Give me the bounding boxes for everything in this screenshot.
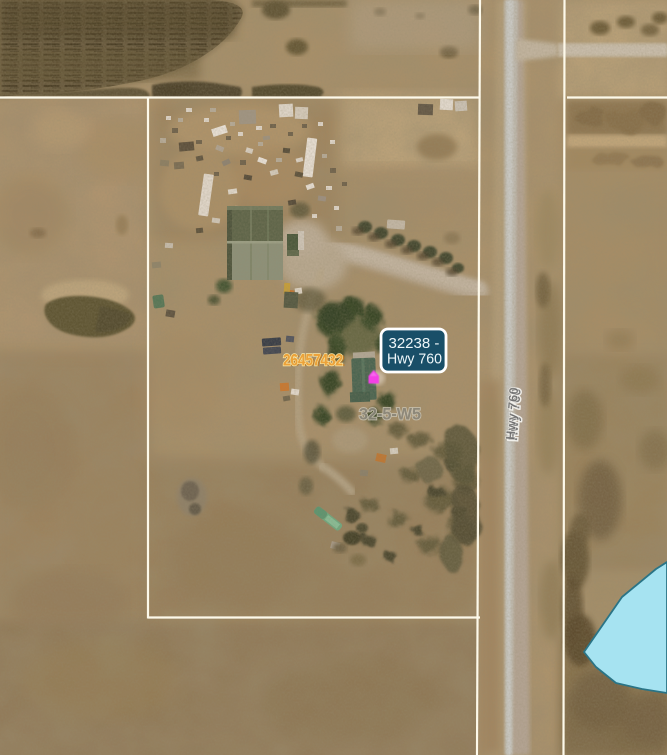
svg-text:32-5-W5: 32-5-W5 — [359, 405, 421, 424]
svg-text:26457432: 26457432 — [283, 352, 343, 370]
svg-text:32238 -: 32238 - — [389, 335, 440, 352]
svg-text:Hwy 760: Hwy 760 — [387, 351, 442, 368]
